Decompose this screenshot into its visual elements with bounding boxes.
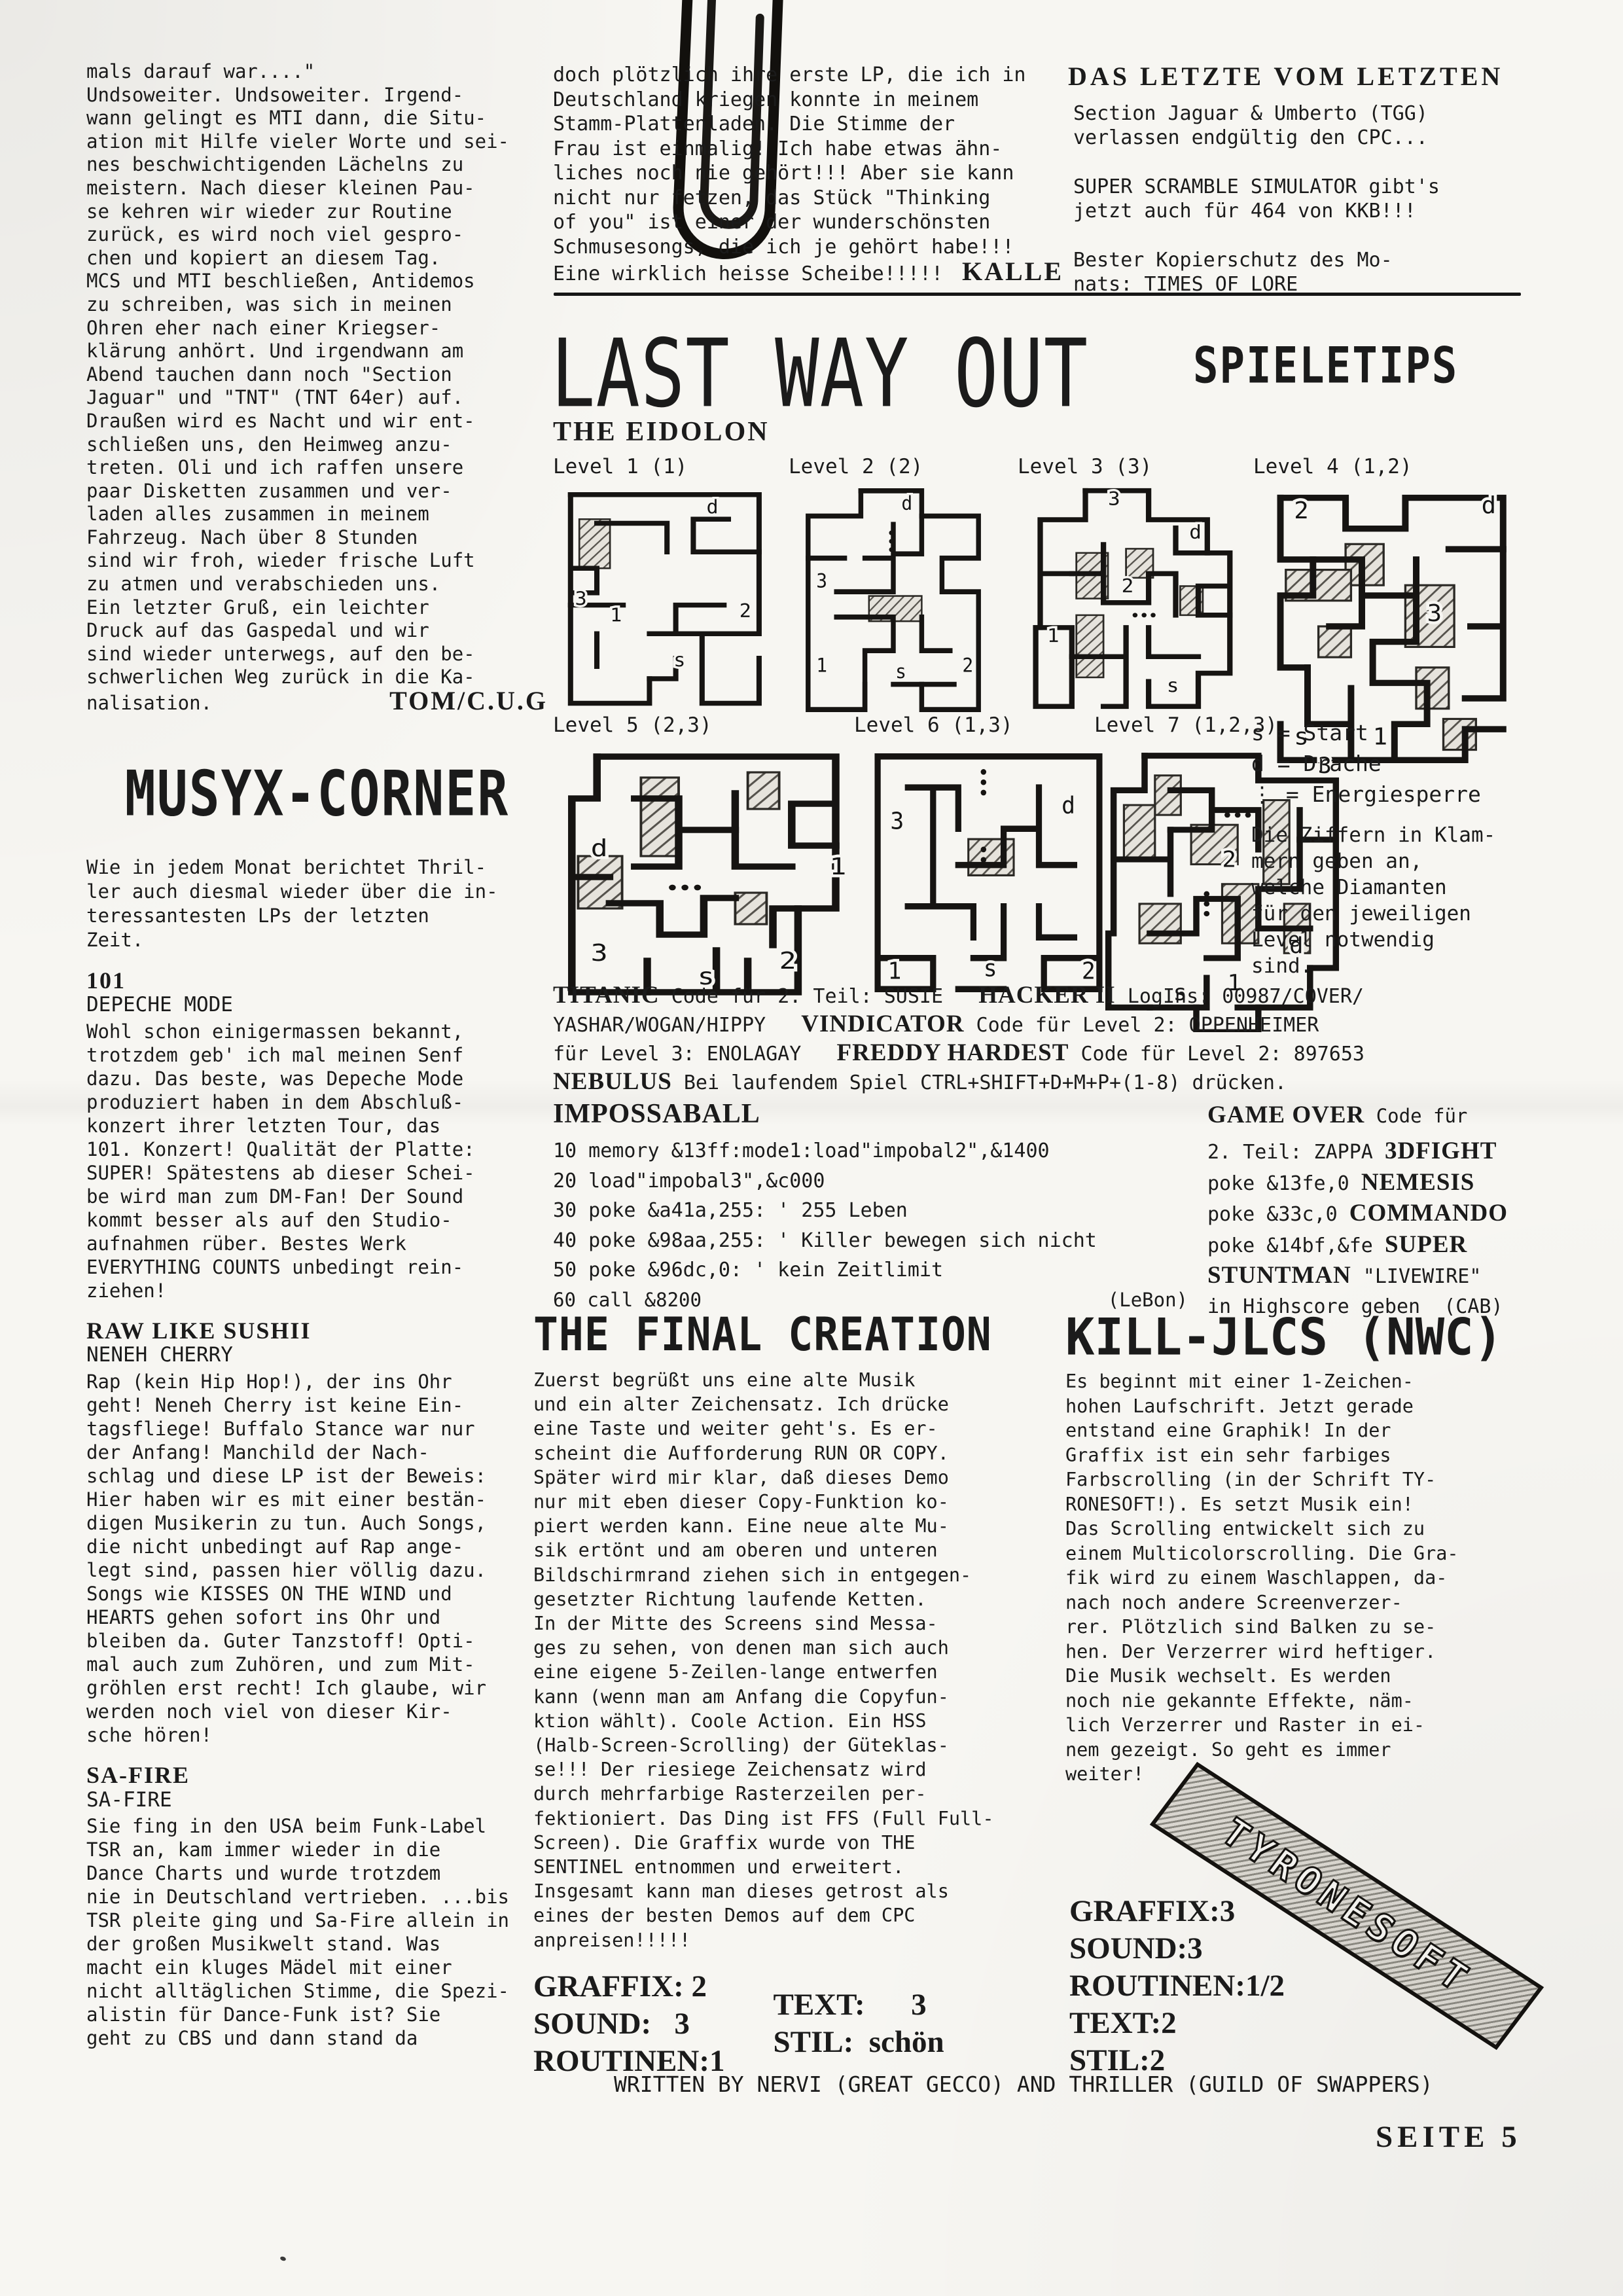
svg-text:3: 3 [1427,600,1442,627]
text-line: 2. Teil: ZAPPA 3DFIGHT [1207,1136,1528,1168]
text-line: poke &13fe,0 NEMESIS [1207,1168,1528,1199]
svg-text:1: 1 [829,853,846,880]
signoff-text: Eine wirklich heisse Scheibe!!!!! [553,262,943,287]
text-line: 20 load"impobal3",&c000 [553,1166,1207,1196]
svg-text:2: 2 [1122,575,1134,597]
review-body: Rap (kein Hip Hop!), der ins Ohr geht! N… [86,1370,548,1747]
text-line: SOUND:3 [1069,1930,1285,1967]
signoff-text: nalisation. [86,692,212,715]
svg-text:d: d [1482,492,1496,519]
review-raw-like-sushii: RAW LIKE SUSHII NENEH CHERRY Rap (kein H… [86,1319,548,1747]
text-line: SOUND: 3 [533,2005,724,2043]
musyx-intro: Wie in jedem Monat berichtet Thril- ler … [86,855,548,952]
svg-text:3: 3 [591,939,608,967]
lp-review-text: doch plötzlich ihre erste LP, die ich in… [553,63,1063,259]
musyx-corner-title: MUSYX-CORNER [86,781,548,861]
final-creation-review: THE FINAL CREATION Zuerst begrüßt uns ei… [533,1308,1070,2080]
text-line: STIL: schön [773,2024,944,2061]
kill-jlcs-ratings: GRAFFIX:3SOUND:3ROUTINEN:1/2TEXT:2STIL:2 [1069,1893,1285,2079]
kill-jlcs-body: Es beginnt mit einer 1-Zeichen- hohen La… [1065,1369,1553,1787]
level-label-7: Level 7 (1,2,3) [1094,713,1277,737]
maze-map-level-6: 3d12s [863,741,1115,999]
section-divider [554,293,1521,296]
review-101: 101 DEPECHE MODE Wohl schon einigermasse… [86,969,548,1302]
middle-column: doch plötzlich ihre erste LP, die ich in… [553,63,1063,287]
gameover-heading: GAME OVER Code für [1207,1101,1467,1129]
spieletips-heading: SPIELETIPS [1193,338,1458,395]
text-line: STUNTMAN "LIVEWIRE" [1207,1261,1528,1292]
level-label-3: Level 3 (3) [1018,455,1152,478]
review-title: RAW LIKE SUSHII [86,1319,548,1343]
final-creation-ratings: GRAFFIX: 2SOUND: 3ROUTINEN:1 TEXT: 3STIL… [533,1968,1070,2080]
level-label-2: Level 2 (2) [789,455,923,478]
review-sa-fire: SA-FIRE SA-FIRE Sie fing in den USA beim… [86,1764,548,2050]
svg-text:2: 2 [1222,847,1236,872]
svg-text:3: 3 [816,570,827,592]
text-line: poke &14bf,&fe SUPER [1207,1230,1528,1261]
left-column: mals darauf war...." Undsoweiter. Undsow… [86,60,548,2050]
svg-text:3: 3 [575,588,587,609]
text-line: 40 poke &98aa,255: ' Killer bewegen sich… [553,1226,1207,1256]
ratings-right: TEXT: 3STIL: schön [773,1986,944,2080]
text-line: ⋮ = Energiesperre [1251,779,1481,810]
maze-map-level-5: d312s [553,741,867,1003]
author-credit: KALLE [962,259,1063,284]
svg-text:s: s [673,649,685,671]
review-title: 101 [86,969,548,993]
text-line: NEBULUS Bei laufendem Spiel CTRL+SHIFT+D… [553,1068,1529,1097]
page-number: SEITE 5 [1376,2119,1522,2155]
basic-listing: 10 memory &13ff:mode1:load"impobal2",&14… [553,1136,1207,1321]
article-signoff: nalisation. TOM/C.U.G [86,689,548,715]
lp-review-signoff: Eine wirklich heisse Scheibe!!!!! KALLE [553,259,1063,287]
svg-text:d: d [707,496,719,518]
tips-row-impossaball: IMPOSSABALL GAME OVER Code für [553,1098,1529,1130]
text-line: 50 poke &96dc,0: ' kein Zeitlimit [553,1255,1207,1285]
level-label-4: Level 4 (1,2) [1253,455,1412,478]
text-line: GRAFFIX:3 [1069,1893,1285,1930]
review-title: SA-FIRE [86,1764,548,1787]
letzte-column: DAS LETZTE VOM LETZTEN Section Jaguar & … [1068,64,1536,296]
game-name-heading: THE EIDOLON [553,416,770,448]
text-line: TEXT: 3 [773,1986,944,2024]
written-by-credit: WRITTEN BY NERVI (GREAT GECCO) AND THRIL… [614,2072,1433,2097]
article-continuation-text: mals darauf war...." Undsoweiter. Undsow… [86,60,548,689]
listing-lines: 10 memory &13ff:mode1:load"impobal2",&14… [553,1136,1207,1285]
svg-text:2: 2 [740,600,751,622]
text-line: TITANIC Code für 2. Teil: SUSIE HACKER I… [553,982,1529,1011]
fanzine-page: mals darauf war...." Undsoweiter. Undsow… [0,0,1623,2296]
svg-text:1: 1 [888,958,902,985]
svg-text:1: 1 [1047,625,1060,647]
review-artist: DEPECHE MODE [86,994,548,1017]
text-line: YASHAR/WOGAN/HIPPY VINDICATOR Code für L… [553,1011,1529,1039]
svg-text:3: 3 [1108,488,1120,510]
svg-text:s: s [984,955,997,982]
level-label-6: Level 6 (1,3) [854,713,1013,737]
svg-text:1: 1 [816,655,827,677]
svg-text:1: 1 [610,604,622,626]
tips-right-column: 2. Teil: ZAPPA 3DFIGHTpoke &13fe,0 NEMES… [1207,1136,1528,1321]
letzte-news-2: SUPER SCRAMBLE SIMULATOR gibt's jetzt au… [1073,175,1536,223]
maze-legend: s = Startd = Drache⋮ = Energiesperre [1251,717,1481,810]
text-line: 30 poke &a41a,255: ' 255 Leben [553,1196,1207,1226]
svg-text:s: s [895,660,906,683]
svg-text:3: 3 [890,808,904,835]
text-line: 10 memory &13ff:mode1:load"impobal2",&14… [553,1136,1207,1166]
svg-text:2: 2 [1294,497,1308,524]
text-line: für Level 3: ENOLAGAY FREDDY HARDEST Cod… [553,1039,1529,1068]
lastwayout-title: LAST WAY OUT [551,327,1088,421]
game-tips-block: TITANIC Code für 2. Teil: SUSIE HACKER I… [553,982,1529,1321]
svg-text:d: d [1189,522,1202,543]
review-artist: SA-FIRE [86,1789,548,1812]
text-line: ROUTINEN:1/2 [1069,1967,1285,2005]
final-creation-title: THE FINAL CREATION [533,1308,1070,1368]
kill-jlcs-review: KILL-JLCS (NWC) Es beginnt mit einer 1-Z… [1065,1308,1553,1787]
text-line: poke &33c,0 COMMANDO [1207,1198,1528,1230]
review-body: Wohl schon einigermassen bekannt, trotzd… [86,1020,548,1302]
review-body: Sie fing in den USA beim Funk-Label TSR … [86,1814,548,2050]
maze-map-level-3: 3d21s [1018,482,1243,715]
letzte-news-3: Bester Kopierschutz des Mo- nats: TIMES … [1073,248,1536,296]
final-creation-body: Zuerst begrüßt uns eine alte Musik und e… [533,1368,1070,1952]
maze-map-level-2: d312s [792,482,995,718]
letzte-news-1: Section Jaguar & Umberto (TGG) verlassen… [1073,101,1536,150]
maze-map-level-1: 3d12s [553,482,772,711]
text-line: s = Start [1251,717,1481,748]
svg-text:d: d [1061,792,1075,819]
maze-legend-note: Die Ziffern in Klam- mern geben an, welc… [1251,822,1533,979]
svg-text:s: s [1167,675,1179,696]
letzte-title: DAS LETZTE VOM LETZTEN [1068,64,1536,88]
level-label-1: Level 1 (1) [553,455,687,478]
impossaball-heading: IMPOSSABALL [553,1099,760,1129]
svg-text:d: d [591,834,608,862]
ratings-left: GRAFFIX: 2SOUND: 3ROUTINEN:1 [533,1968,724,2080]
level-label-5: Level 5 (2,3) [553,713,712,737]
text-line: TEXT:2 [1069,2005,1285,2042]
text-line: GRAFFIX: 2 [533,1968,724,2005]
kill-jlcs-title: KILL-JLCS (NWC) [1065,1308,1553,1368]
text-line: d = Drache [1251,748,1481,779]
svg-text:2: 2 [962,655,973,677]
review-artist: NENEH CHERRY [86,1344,548,1367]
tips-rich-lines: TITANIC Code für 2. Teil: SUSIE HACKER I… [553,982,1529,1097]
author-credit: TOM/C.U.G [389,689,548,713]
svg-text:2: 2 [779,947,796,975]
ink-speck [279,2256,287,2262]
svg-text:d: d [901,492,912,514]
